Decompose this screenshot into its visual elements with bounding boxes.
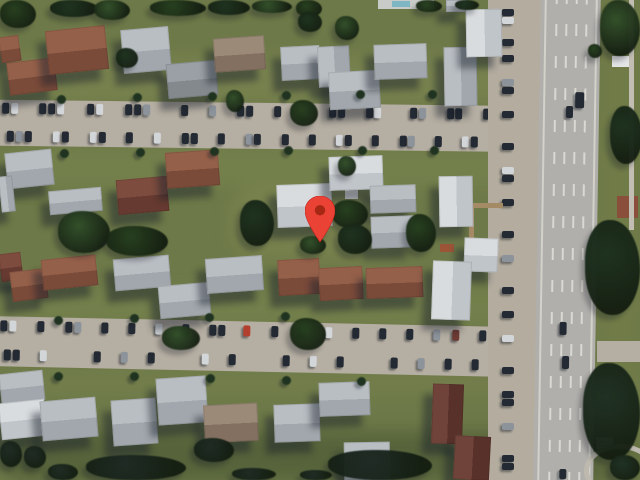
parked-car: [502, 17, 514, 24]
tree-canopy: [208, 0, 250, 15]
parked-car: [13, 350, 20, 361]
parked-car: [337, 356, 344, 367]
driving-car: [559, 469, 566, 479]
parked-car: [345, 135, 352, 146]
parked-car: [128, 323, 135, 334]
tree-canopy: [588, 44, 602, 58]
parked-car: [502, 87, 514, 94]
tree-canopy: [24, 446, 46, 468]
building-roof: [45, 25, 109, 75]
parked-car: [455, 108, 462, 119]
building-roof: [439, 176, 474, 228]
parked-car: [502, 79, 514, 86]
parked-car: [374, 107, 381, 118]
palm-tree: [206, 374, 215, 383]
parked-car: [37, 321, 44, 332]
parking-street: [0, 100, 545, 153]
tree-canopy: [94, 0, 130, 20]
parked-car: [274, 106, 281, 117]
tree-canopy: [252, 0, 292, 13]
tree-canopy: [298, 12, 322, 32]
tree-canopy: [583, 363, 640, 460]
parked-car: [101, 322, 108, 333]
ground-structure: [440, 244, 454, 252]
tree-canopy: [50, 0, 98, 17]
tree-canopy: [300, 470, 332, 480]
parked-car: [282, 134, 289, 145]
tree-canopy: [48, 464, 78, 480]
parked-car: [372, 135, 379, 146]
building-roof: [318, 266, 364, 301]
building-roof: [277, 258, 321, 296]
palm-tree: [54, 372, 63, 381]
driving-car: [560, 322, 567, 335]
parked-car: [39, 103, 46, 114]
tree-canopy: [86, 455, 186, 480]
palm-tree: [57, 95, 66, 104]
parked-car: [9, 320, 16, 331]
parked-car: [155, 324, 162, 335]
parked-car: [352, 328, 359, 339]
parked-car: [2, 103, 9, 114]
palm-tree: [130, 372, 139, 381]
parked-car: [40, 350, 47, 361]
building-roof: [318, 381, 370, 417]
parked-car: [502, 311, 514, 318]
parked-car: [87, 104, 94, 115]
parked-car: [90, 132, 97, 143]
palm-tree: [130, 314, 139, 323]
parked-car: [243, 325, 250, 336]
lane-dash-line: [558, 0, 568, 480]
building-roof: [116, 176, 170, 215]
parked-car: [25, 131, 32, 142]
building-roof: [431, 260, 472, 320]
tree-canopy: [335, 16, 359, 40]
tree-canopy: [226, 90, 244, 112]
parked-car: [99, 132, 106, 143]
parked-car: [502, 167, 514, 174]
parked-car: [391, 357, 398, 368]
parked-car: [209, 325, 216, 336]
palm-tree: [54, 316, 63, 325]
tree-canopy: [0, 441, 22, 467]
parked-car: [65, 322, 72, 333]
tree-canopy: [585, 220, 640, 315]
parking-street: [0, 316, 551, 378]
parked-car: [271, 326, 278, 337]
palm-tree: [358, 146, 367, 155]
tree-canopy: [194, 438, 234, 462]
parked-car: [191, 133, 198, 144]
tree-canopy: [600, 0, 640, 56]
building-roof: [373, 43, 427, 80]
parked-car: [0, 320, 7, 331]
parked-car: [4, 349, 11, 360]
side-road: [597, 341, 640, 362]
parked-car: [134, 104, 141, 115]
building-roof: [466, 9, 503, 58]
parked-car: [94, 351, 101, 362]
parked-car: [379, 328, 386, 339]
palm-tree: [282, 376, 291, 385]
palm-tree: [136, 148, 145, 157]
parked-car: [148, 352, 155, 363]
tree-canopy: [232, 468, 276, 480]
parked-car: [502, 199, 514, 206]
building-roof: [213, 35, 266, 72]
tree-canopy: [290, 100, 318, 126]
parked-car: [218, 133, 225, 144]
parked-car: [447, 108, 454, 119]
building-roof: [39, 397, 98, 442]
driving-car: [575, 92, 584, 108]
tree-canopy: [455, 0, 479, 10]
palm-tree: [356, 90, 365, 99]
building-roof: [328, 70, 381, 111]
parked-car: [502, 55, 514, 62]
pin-body: [305, 196, 335, 242]
parked-car: [48, 103, 55, 114]
palm-tree: [428, 90, 437, 99]
driving-car: [562, 356, 569, 369]
parked-car: [433, 329, 440, 340]
tree-canopy: [0, 0, 36, 28]
parked-car: [502, 111, 514, 118]
ground-structure: [612, 56, 629, 67]
parked-car: [16, 131, 23, 142]
palm-tree: [133, 93, 142, 102]
building-roof: [365, 266, 423, 299]
parked-car: [400, 136, 407, 147]
tree-canopy: [328, 450, 432, 480]
parked-car: [471, 136, 478, 147]
lane-dash-line: [568, 0, 578, 480]
building-roof: [370, 184, 417, 214]
parked-car: [246, 134, 253, 145]
parked-car: [502, 287, 514, 294]
parked-car: [502, 255, 514, 262]
tree-canopy: [150, 0, 206, 16]
parked-car: [53, 131, 60, 142]
palm-tree: [430, 146, 439, 155]
parked-car: [7, 131, 14, 142]
palm-tree: [282, 91, 291, 100]
tree-canopy: [338, 224, 372, 254]
parked-car: [336, 135, 343, 146]
parked-car: [74, 322, 81, 333]
building-roof: [453, 435, 491, 480]
pin-hole: [315, 205, 325, 215]
parked-car: [246, 106, 253, 117]
parked-car: [502, 175, 514, 182]
palm-tree: [357, 377, 366, 386]
building-roof: [110, 397, 158, 446]
parked-car: [418, 358, 425, 369]
parked-car: [62, 131, 69, 142]
ground-structure: [469, 203, 503, 208]
palm-tree: [208, 92, 217, 101]
ground-structure: [392, 1, 410, 7]
parked-car: [408, 136, 415, 147]
tree-canopy: [610, 106, 640, 164]
tree-canopy: [116, 48, 138, 68]
parked-car: [502, 455, 514, 462]
building-roof: [41, 254, 99, 291]
parked-car: [502, 463, 514, 470]
parked-car: [143, 104, 150, 115]
tree-canopy: [406, 214, 436, 252]
parked-car: [502, 39, 514, 46]
satellite-map[interactable]: [0, 0, 640, 480]
palm-tree: [60, 149, 69, 158]
building-roof: [280, 45, 321, 81]
parked-car: [502, 367, 514, 374]
palm-tree: [281, 312, 290, 321]
parked-car: [125, 104, 132, 115]
parked-car: [254, 134, 261, 145]
parked-car: [310, 356, 317, 367]
palm-tree: [284, 146, 293, 155]
parked-car: [445, 359, 452, 370]
parked-car: [325, 327, 332, 338]
parked-car: [366, 107, 373, 118]
parked-car: [479, 330, 486, 341]
parked-car: [502, 335, 514, 342]
parked-car: [202, 354, 209, 365]
parked-car: [229, 354, 236, 365]
building-roof: [273, 403, 320, 443]
parked-car: [11, 103, 18, 114]
parked-car: [502, 399, 514, 406]
parked-car: [218, 325, 225, 336]
parked-car: [406, 329, 413, 340]
building-roof: [158, 282, 212, 319]
tree-canopy: [610, 455, 640, 480]
parked-car: [154, 133, 161, 144]
tree-canopy: [162, 326, 200, 350]
parked-car: [502, 143, 514, 150]
parked-car: [283, 355, 290, 366]
location-pin-icon[interactable]: [305, 196, 335, 243]
parked-car: [452, 330, 459, 341]
parked-car: [462, 136, 469, 147]
parked-car: [57, 103, 64, 114]
tree-canopy: [58, 211, 110, 253]
tree-canopy: [106, 226, 168, 256]
parked-car: [209, 105, 216, 116]
tree-canopy: [290, 318, 326, 350]
tree-canopy: [338, 156, 356, 176]
parked-car: [419, 108, 426, 119]
palm-tree: [210, 147, 219, 156]
parked-car: [502, 231, 514, 238]
parked-car: [472, 359, 479, 370]
parked-car: [502, 9, 514, 16]
building-roof: [205, 255, 264, 294]
parked-car: [126, 132, 133, 143]
parked-car: [309, 134, 316, 145]
driving-car: [566, 106, 573, 118]
parked-car: [502, 391, 514, 398]
parked-car: [181, 105, 188, 116]
parked-car: [502, 423, 514, 430]
palm-tree: [205, 313, 214, 322]
tree-canopy: [240, 200, 274, 246]
ground-structure: [617, 196, 638, 218]
tree-canopy: [416, 0, 442, 12]
parked-car: [96, 104, 103, 115]
building-roof: [0, 35, 22, 64]
parked-car: [182, 133, 189, 144]
parked-car: [121, 352, 128, 363]
lane-dash-line: [548, 0, 558, 480]
parked-car: [410, 108, 417, 119]
building-roof: [155, 375, 208, 425]
